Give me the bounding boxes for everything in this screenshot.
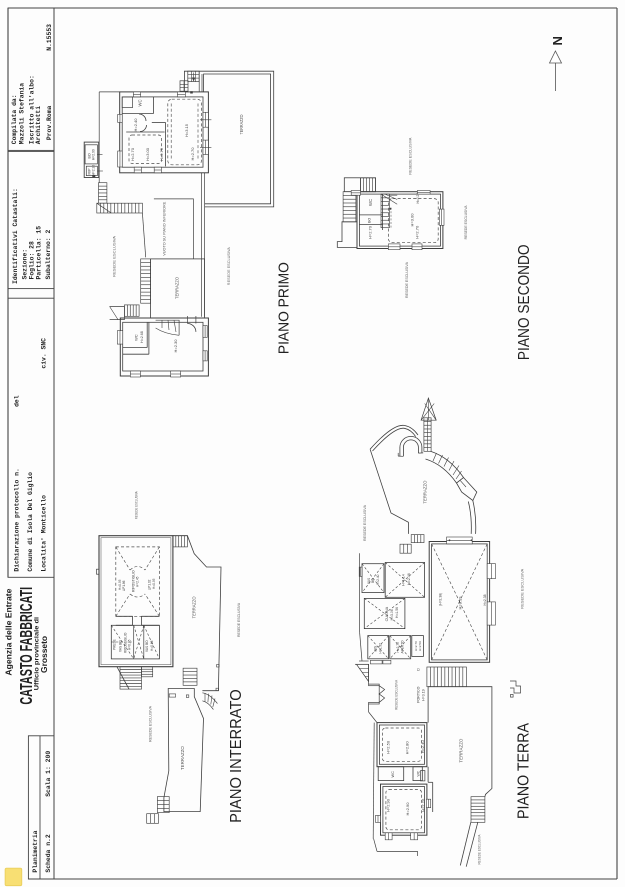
svg-text:RESEDE ESCLUSIVA: RESEDE ESCLUSIVA bbox=[520, 568, 525, 608]
svg-text:RESEDE ESCLUSIVA: RESEDE ESCLUSIVA bbox=[394, 680, 399, 710]
svg-text:VUOTO SU PIANO INFERIORE: VUOTO SU PIANO INFERIORE bbox=[163, 201, 167, 256]
svg-text:(H=2.38): (H=2.38) bbox=[438, 593, 442, 606]
svg-text:Subalterno: 2: Subalterno: 2 bbox=[45, 230, 52, 280]
svg-text:CUCINA: CUCINA bbox=[385, 606, 389, 621]
svg-text:Architetti: Architetti bbox=[35, 106, 42, 144]
svg-text:D: D bbox=[417, 668, 421, 671]
svg-text:H=2.40: H=2.40 bbox=[420, 740, 425, 754]
svg-text:H=2.46: H=2.46 bbox=[407, 573, 411, 585]
svg-text:Planimetria: Planimetria bbox=[32, 830, 39, 872]
svg-text:TERRAZZO: TERRAZZO bbox=[174, 276, 179, 299]
svg-text:RESEDE ESCLUSIVA: RESEDE ESCLUSIVA bbox=[236, 603, 241, 637]
svg-text:H=2.92: H=2.92 bbox=[379, 643, 383, 654]
svg-text:PIANO SECONDO: PIANO SECONDO bbox=[516, 244, 533, 360]
svg-text:Localita' Monticello: Localita' Monticello civ. SNC bbox=[41, 338, 48, 572]
svg-text:VAS BO: VAS BO bbox=[119, 640, 123, 652]
svg-text:WC: WC bbox=[134, 334, 139, 341]
svg-text:H=2.38: H=2.38 bbox=[483, 594, 487, 605]
svg-text:VAS BO: VAS BO bbox=[145, 640, 149, 652]
svg-text:PIANO TERRA: PIANO TERRA bbox=[516, 723, 533, 819]
svg-text:ΔP1.86: ΔP1.86 bbox=[122, 580, 126, 591]
svg-text:H=3.19: H=3.19 bbox=[458, 596, 463, 610]
svg-text:H=1.14: H=1.14 bbox=[402, 574, 406, 586]
svg-text:H=3.19: H=3.19 bbox=[421, 689, 425, 701]
svg-text:RESEDE ESCLUSIVA: RESEDE ESCLUSIVA bbox=[362, 505, 367, 541]
svg-text:H=2.70: H=2.70 bbox=[415, 225, 420, 239]
svg-text:H=2.80: H=2.80 bbox=[404, 741, 409, 755]
svg-text:H=0.95: H=0.95 bbox=[152, 578, 156, 589]
svg-text:H=2.30: H=2.30 bbox=[173, 339, 178, 353]
svg-text:TERRAZZO: TERRAZZO bbox=[192, 596, 197, 619]
svg-text:TERRAZZO: TERRAZZO bbox=[239, 114, 244, 134]
svg-text:N: N bbox=[550, 36, 565, 45]
svg-text:Agenzia delle Entrate: Agenzia delle Entrate bbox=[5, 588, 14, 675]
svg-text:PRESE: PRESE bbox=[113, 639, 117, 650]
svg-text:RESEDE ESCLUSIVA: RESEDE ESCLUSIVA bbox=[112, 236, 117, 277]
svg-text:H=3.06: H=3.06 bbox=[390, 609, 394, 620]
svg-text:H=2.90: H=2.90 bbox=[405, 802, 410, 816]
svg-text:APERTO: APERTO bbox=[401, 640, 405, 654]
svg-text:Particella: 15: Particella: 15 bbox=[36, 226, 43, 280]
svg-text:H=2.40: H=2.40 bbox=[376, 574, 380, 585]
svg-text:H=2.75: H=2.75 bbox=[396, 642, 400, 653]
svg-text:Compilata da:: Compilata da: bbox=[11, 94, 18, 144]
svg-text:H=2.40: H=2.40 bbox=[133, 118, 138, 132]
svg-text:PIANO INTERRATO: PIANO INTERRATO bbox=[228, 689, 245, 823]
svg-text:H=2.70: H=2.70 bbox=[190, 147, 195, 161]
svg-text:H=2.90: H=2.90 bbox=[385, 798, 390, 812]
svg-text:H=3.00: H=3.00 bbox=[409, 213, 414, 227]
svg-text:H=2.30: H=2.30 bbox=[91, 165, 95, 176]
svg-text:RESEDE ESCLUSIVA: RESEDE ESCLUSIVA bbox=[148, 706, 153, 742]
svg-text:H=2.59: H=2.59 bbox=[418, 641, 422, 651]
svg-text:WC: WC bbox=[368, 199, 373, 206]
svg-text:TERRAZZO: TERRAZZO bbox=[180, 745, 185, 770]
svg-text:Identificativi Catastali:: Identificativi Catastali: bbox=[12, 188, 19, 284]
svg-text:PORTICO: PORTICO bbox=[417, 686, 421, 703]
svg-text:RESEDE ESCLUSIVA: RESEDE ESCLUSIVA bbox=[135, 491, 139, 519]
svg-text:RESEDE ESCLUSIVA: RESEDE ESCLUSIVA bbox=[404, 262, 409, 298]
svg-text:H=2.75: H=2.75 bbox=[159, 147, 164, 161]
svg-text:H=2.20: H=2.20 bbox=[421, 798, 426, 812]
svg-text:ΔP1.02: ΔP1.02 bbox=[148, 579, 152, 590]
svg-text:H=2.70: H=2.70 bbox=[368, 225, 373, 239]
svg-text:PIANO PRIMO: PIANO PRIMO bbox=[276, 262, 293, 354]
svg-text:RESEDE ESCLUSIVA: RESEDE ESCLUSIVA bbox=[226, 247, 231, 285]
svg-text:WC: WC bbox=[138, 100, 143, 107]
svg-text:WC: WC bbox=[417, 770, 421, 776]
svg-text:H=2.45: H=2.45 bbox=[136, 576, 140, 587]
svg-text:Scala 1: 200: Scala 1: 200 bbox=[45, 751, 52, 797]
svg-text:BO: BO bbox=[368, 218, 372, 223]
svg-text:H=0.66: H=0.66 bbox=[150, 640, 154, 651]
svg-text:WC: WC bbox=[391, 771, 395, 778]
svg-text:Prov.Roma: Prov.Roma bbox=[46, 105, 53, 140]
svg-text:Mazzoli Stefania: Mazzoli Stefania bbox=[18, 83, 25, 144]
svg-text:H=2.50: H=2.50 bbox=[386, 740, 391, 754]
svg-text:TERRAZZO: TERRAZZO bbox=[459, 738, 464, 763]
svg-text:RESEDE ESCLUSIVA: RESEDE ESCLUSIVA bbox=[408, 137, 413, 174]
svg-text:Scheda n.2: Scheda n.2 bbox=[45, 834, 52, 872]
svg-text:H=1.56: H=1.56 bbox=[395, 607, 399, 618]
svg-text:BO: BO bbox=[371, 578, 375, 583]
svg-text:H=2.00: H=2.00 bbox=[91, 149, 95, 160]
svg-text:Foglio: 28: Foglio: 28 bbox=[29, 241, 36, 279]
svg-text:H=2.68: H=2.68 bbox=[140, 331, 144, 343]
svg-text:Dichiarazione protocollo n.: Dichiarazione protocollo n. del bbox=[14, 395, 21, 571]
svg-text:RESEDE ESCLUSIVA: RESEDE ESCLUSIVA bbox=[463, 205, 468, 239]
svg-text:Sezione:: Sezione: bbox=[22, 249, 29, 280]
svg-text:Grosseto: Grosseto bbox=[39, 636, 49, 673]
svg-text:N.15553: N.15553 bbox=[46, 24, 53, 51]
svg-text:DIS: DIS bbox=[374, 645, 378, 651]
svg-text:TERRAZZO: TERRAZZO bbox=[423, 480, 428, 504]
svg-text:RESEDE ESCLUSIVA: RESEDE ESCLUSIVA bbox=[477, 834, 482, 864]
svg-text:H=2.70: H=2.70 bbox=[130, 147, 135, 161]
svg-text:H=3.15: H=3.15 bbox=[184, 123, 189, 137]
svg-text:Comune di Isola Del Giglio: Comune di Isola Del Giglio bbox=[27, 472, 34, 572]
svg-text:H=0.95: H=0.95 bbox=[128, 639, 132, 650]
svg-text:H=3.00: H=3.00 bbox=[145, 147, 150, 161]
